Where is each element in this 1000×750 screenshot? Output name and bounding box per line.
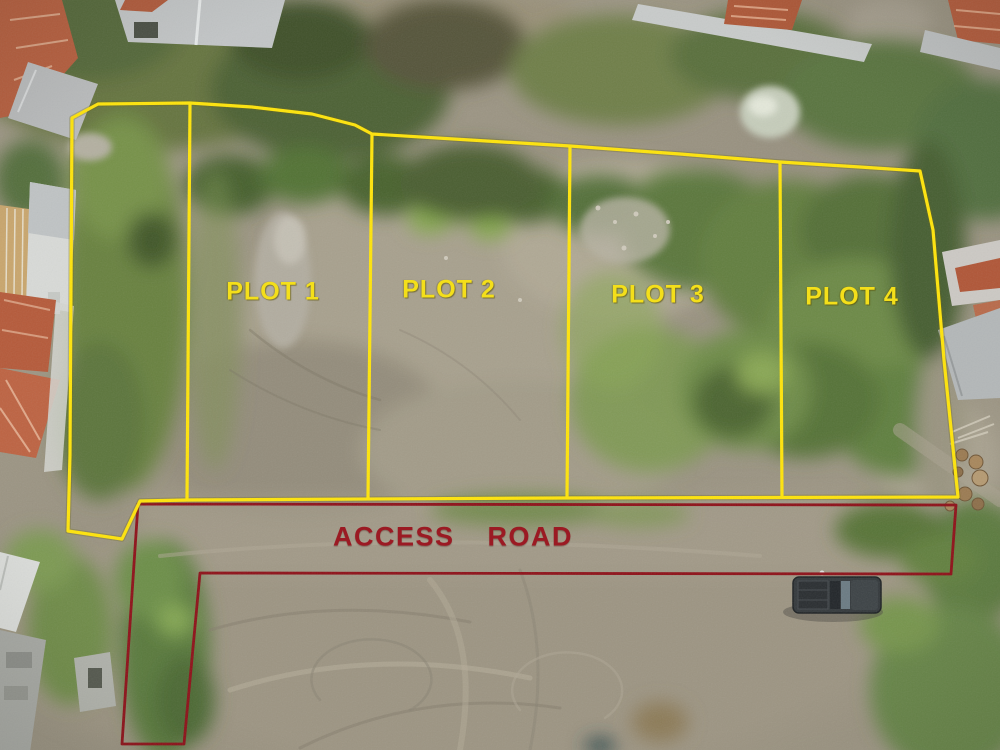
plot-3-label: PLOT 3 [611,281,705,310]
photo-render [0,0,1000,750]
aerial-photo: PLOT 1 PLOT 2 PLOT 3 PLOT 4 ACCESS ROAD [0,0,1000,750]
plot-2-label: PLOT 2 [402,276,496,305]
vignette [0,0,1000,750]
plot-4-label: PLOT 4 [805,283,899,312]
access-road-label: ACCESS ROAD [333,522,573,553]
plot-1-label: PLOT 1 [226,278,320,307]
